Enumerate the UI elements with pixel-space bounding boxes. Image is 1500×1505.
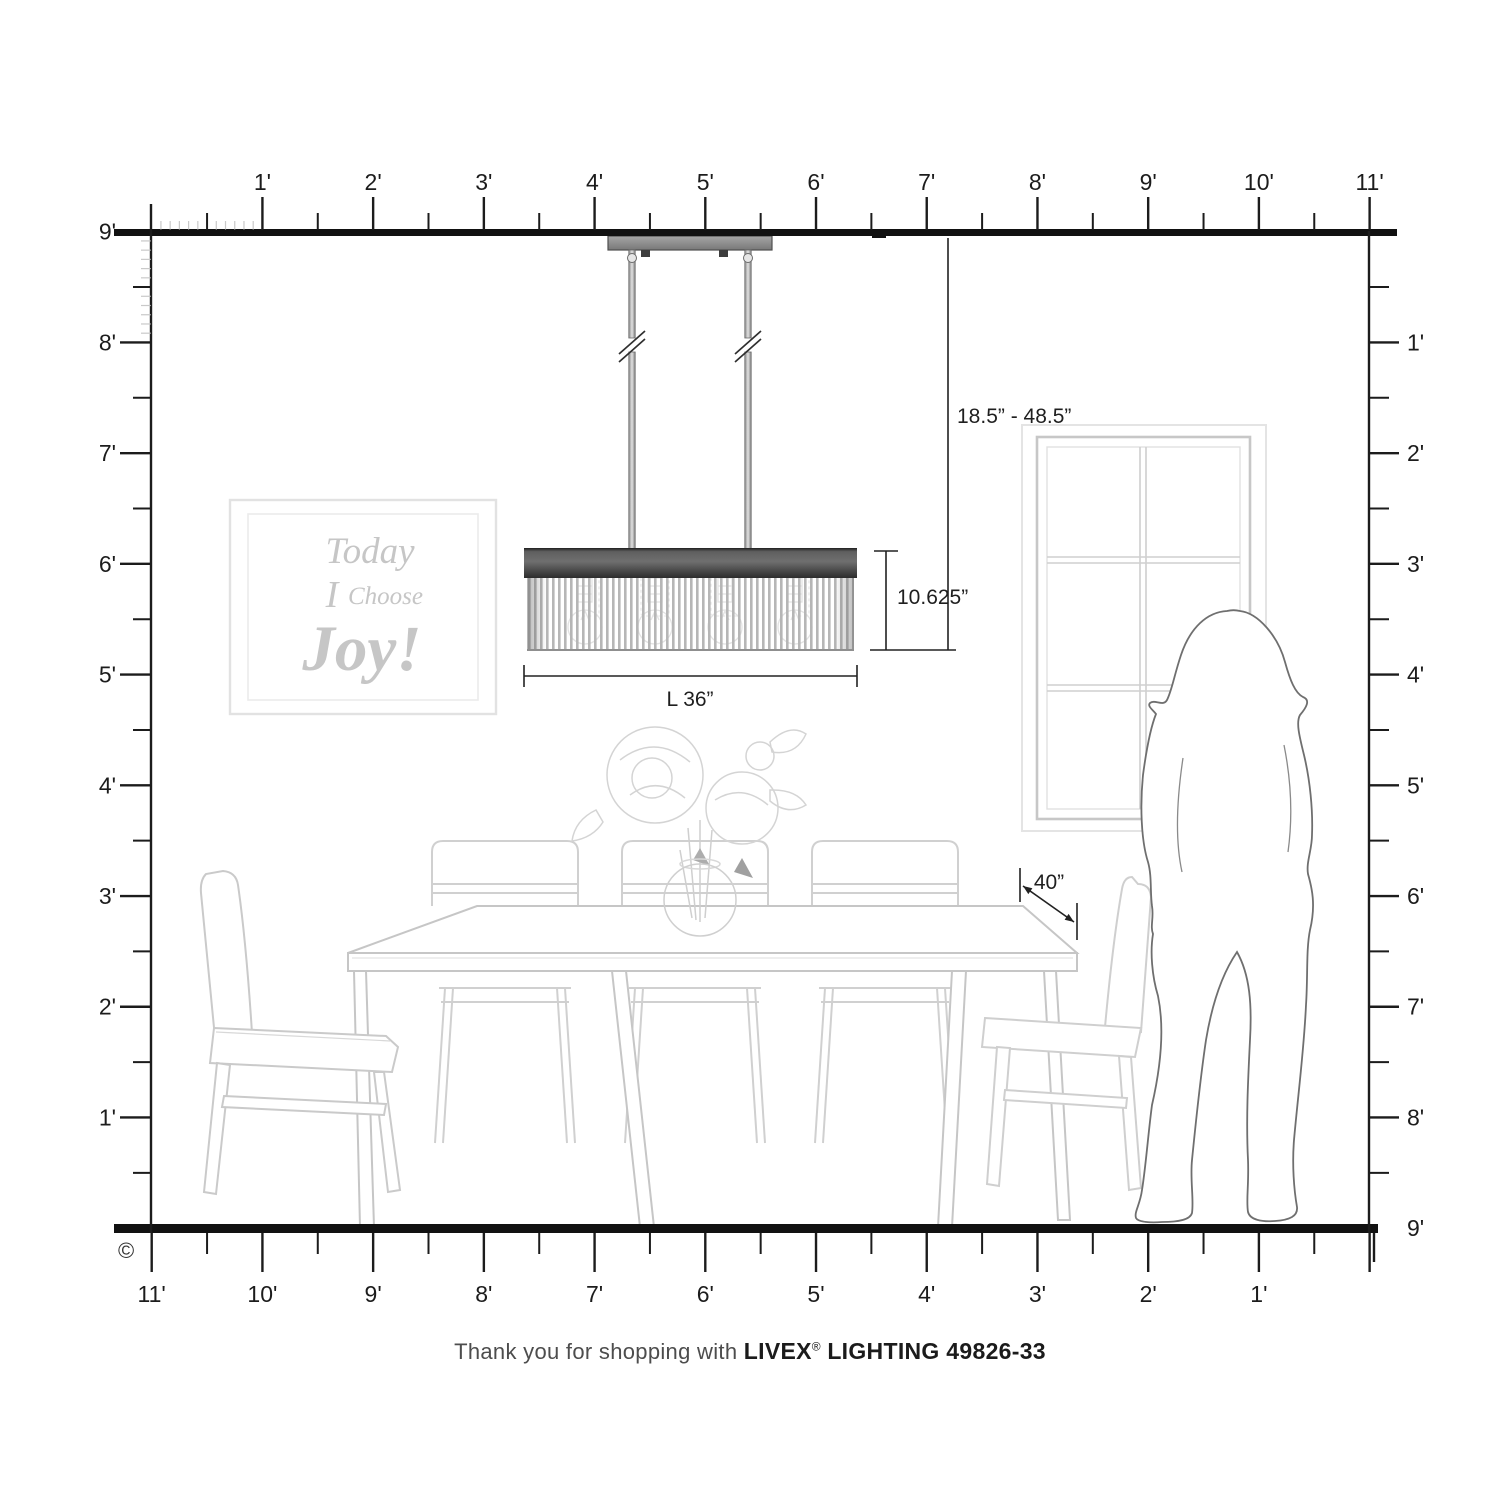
ruler-label: 3' bbox=[1407, 551, 1424, 577]
ruler-label: 8' bbox=[1407, 1104, 1424, 1130]
fixture-height-label: 10.625” bbox=[897, 586, 968, 609]
ruler-label: 8' bbox=[1029, 169, 1046, 195]
ruler-label: 3' bbox=[99, 883, 116, 909]
table-clearance-label: 40” bbox=[1034, 871, 1064, 894]
ruler-label: 3' bbox=[1029, 1281, 1046, 1307]
leaf bbox=[770, 730, 806, 753]
ruler-label: 6' bbox=[99, 551, 116, 577]
ruler-label: 4' bbox=[586, 169, 603, 195]
ruler-label: 5' bbox=[1407, 772, 1424, 798]
fixture-length-label: L 36” bbox=[666, 688, 713, 711]
ruler-label: 4' bbox=[918, 1281, 935, 1307]
ruler-label: 2' bbox=[99, 994, 116, 1020]
fixture-length-dimension bbox=[524, 665, 857, 687]
ruler-label: 9' bbox=[99, 219, 116, 245]
chandelier bbox=[524, 236, 857, 650]
ruler-label: 2' bbox=[1140, 1281, 1157, 1307]
dimension-diagram: Today I Choose Joy! bbox=[0, 0, 1500, 1500]
dining-chair bbox=[432, 841, 578, 1143]
ruler-label: 11' bbox=[138, 1281, 166, 1307]
ruler-label: 6' bbox=[1407, 883, 1424, 909]
leaf bbox=[572, 810, 603, 841]
ruler-label: 2' bbox=[1407, 440, 1424, 466]
registered-mark: ® bbox=[812, 1340, 821, 1354]
table-top bbox=[348, 906, 1077, 953]
room-scale-drawing: Today I Choose Joy! bbox=[0, 0, 1500, 1500]
ruler-label: 10' bbox=[247, 1281, 277, 1307]
flower-bud bbox=[746, 742, 774, 770]
bottom-ruler: 11'10'9'8'7'6'5'4'3'2'1' bbox=[138, 1233, 1370, 1307]
wall-art-line2-initial: I bbox=[325, 574, 341, 616]
downrod bbox=[735, 250, 761, 551]
ruler-label: 8' bbox=[99, 329, 116, 355]
ruler-label: 6' bbox=[697, 1281, 714, 1307]
ruler-label: 4' bbox=[1407, 662, 1424, 688]
ruler-label: 1' bbox=[99, 1104, 116, 1130]
flower-bloom bbox=[607, 727, 703, 823]
caption-prefix: Thank you for shopping with bbox=[454, 1339, 737, 1364]
ruler-label: 5' bbox=[697, 169, 714, 195]
ruler-label: 5' bbox=[807, 1281, 824, 1307]
ruler-label: 7' bbox=[99, 440, 116, 466]
drum-shade bbox=[524, 548, 857, 650]
ruler-label: 10' bbox=[1244, 169, 1274, 195]
dining-table bbox=[348, 906, 1077, 1227]
ruler-label: 4' bbox=[99, 772, 116, 798]
shade-band bbox=[524, 548, 857, 578]
copyright-symbol: © bbox=[118, 1238, 134, 1263]
ruler-label: 1' bbox=[1250, 1281, 1267, 1307]
wall-art-frame: Today I Choose Joy! bbox=[230, 500, 496, 714]
ruler-label: 9' bbox=[365, 1281, 382, 1307]
ruler-label: 7' bbox=[586, 1281, 603, 1307]
table-leg bbox=[354, 971, 374, 1227]
ceiling-canopy bbox=[608, 236, 772, 250]
ruler-label: 8' bbox=[475, 1281, 492, 1307]
top-ruler: 1'2'3'4'5'6'7'8'9'10'11' bbox=[207, 169, 1384, 230]
wall-art-line1: Today bbox=[325, 531, 415, 572]
ruler-label: 5' bbox=[99, 662, 116, 688]
wall-art-line2-word: Choose bbox=[348, 583, 423, 610]
table-leg bbox=[938, 971, 966, 1227]
inch-tick-marks bbox=[141, 221, 253, 333]
ruler-label: 7' bbox=[918, 169, 935, 195]
drop-range-label: 18.5” - 48.5” bbox=[957, 405, 1071, 428]
dining-chair bbox=[812, 841, 958, 1143]
floor-line bbox=[114, 1224, 1378, 1233]
ruler-label: 9' bbox=[1140, 169, 1157, 195]
ruler-label: 1' bbox=[254, 169, 271, 195]
dining-chair bbox=[622, 841, 768, 1143]
ruler-label: 3' bbox=[475, 169, 492, 195]
ceiling-line bbox=[114, 229, 1397, 236]
caption: Thank you for shopping with LIVEX® LIGHT… bbox=[0, 1338, 1500, 1365]
right-ruler: 1'2'3'4'5'6'7'8'9' bbox=[1369, 287, 1424, 1262]
ruler-label: 1' bbox=[1407, 329, 1424, 355]
flower-bloom bbox=[706, 772, 778, 844]
woman-silhouette bbox=[1136, 610, 1313, 1222]
left-ruler: 9'8'7'6'5'4'3'2'1' bbox=[99, 219, 151, 1173]
dining-chairs-back-row bbox=[432, 841, 958, 1143]
ruler-label: 9' bbox=[1407, 1215, 1424, 1241]
ruler-label: 7' bbox=[1407, 994, 1424, 1020]
table-apron bbox=[348, 953, 1077, 971]
ruler-label: 2' bbox=[365, 169, 382, 195]
ruler-label: 6' bbox=[807, 169, 824, 195]
downrod bbox=[619, 250, 645, 551]
ruler-label: 11' bbox=[1355, 169, 1383, 195]
wall-art-line3: Joy! bbox=[301, 613, 421, 685]
canopy-screw bbox=[641, 250, 650, 257]
brand-name: LIVEX bbox=[744, 1338, 812, 1364]
model-number: LIGHTING 49826-33 bbox=[827, 1338, 1046, 1364]
fixture-height-dimension bbox=[874, 551, 898, 650]
canopy-screw bbox=[719, 250, 728, 257]
flower-vase bbox=[572, 727, 806, 936]
